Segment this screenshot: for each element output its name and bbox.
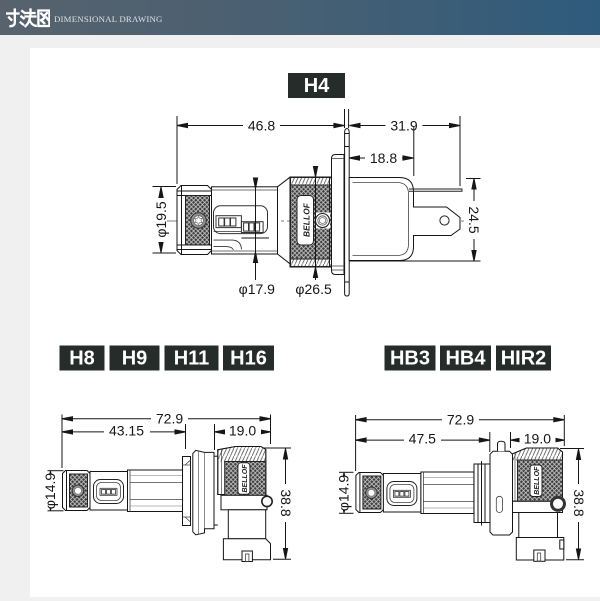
svg-text:φ19.5: φ19.5 [153, 201, 169, 238]
svg-text:φ14.9: φ14.9 [336, 475, 352, 512]
svg-text:47.5: 47.5 [409, 431, 436, 447]
svg-text:BELLOF: BELLOF [303, 202, 312, 237]
svg-text:19.0: 19.0 [524, 431, 551, 447]
svg-text:18.8: 18.8 [370, 150, 397, 166]
svg-text:H16: H16 [230, 348, 267, 370]
svg-text:φ14.9: φ14.9 [42, 473, 58, 510]
svg-text:H4: H4 [304, 75, 330, 97]
svg-text:HB4: HB4 [445, 348, 486, 370]
svg-text:BELLOF: BELLOF [242, 464, 249, 493]
svg-text:38.8: 38.8 [278, 489, 294, 516]
svg-text:72.9: 72.9 [447, 412, 474, 428]
svg-text:φ26.5: φ26.5 [295, 281, 332, 297]
svg-text:H8: H8 [69, 348, 95, 370]
svg-text:24.5: 24.5 [466, 206, 482, 233]
svg-text:72.9: 72.9 [156, 411, 183, 427]
svg-text:H9: H9 [122, 348, 148, 370]
svg-text:BELLOF: BELLOF [534, 466, 541, 495]
svg-text:HB3: HB3 [390, 348, 430, 370]
svg-text:H11: H11 [174, 348, 210, 370]
svg-text:φ17.9: φ17.9 [239, 281, 276, 297]
svg-text:38.8: 38.8 [571, 489, 587, 516]
svg-text:HIR2: HIR2 [501, 348, 547, 370]
svg-text:43.15: 43.15 [109, 422, 144, 438]
svg-text:46.8: 46.8 [248, 118, 275, 134]
svg-text:19.0: 19.0 [229, 422, 256, 438]
